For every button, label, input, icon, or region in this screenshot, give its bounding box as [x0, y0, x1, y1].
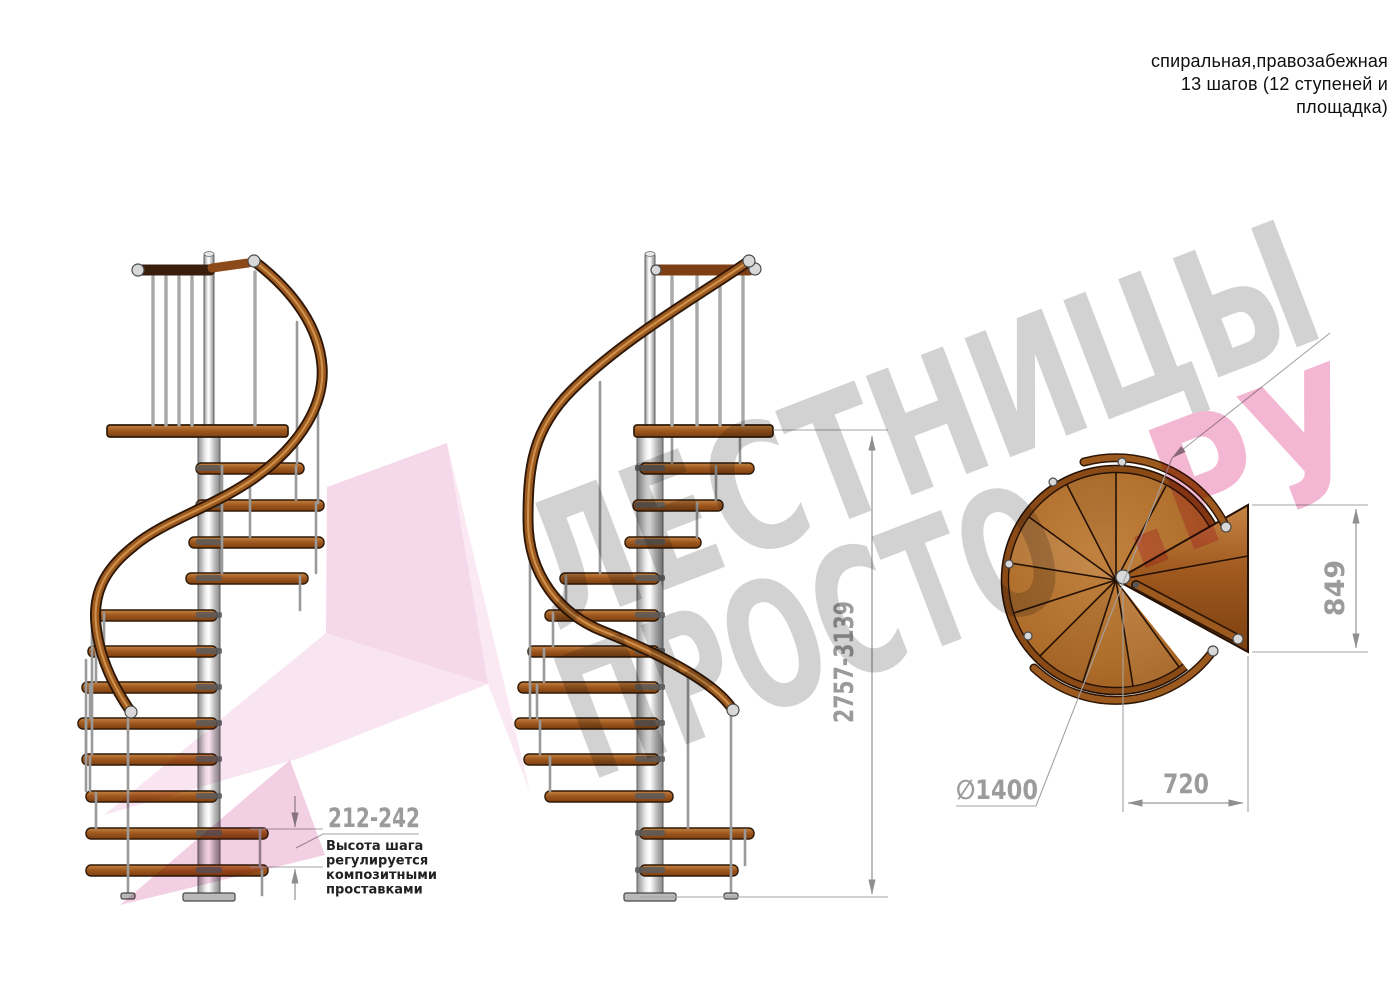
step-height-note: Высота шага — [326, 839, 423, 854]
total-height-value: 2757-3139 — [829, 601, 860, 723]
platform — [107, 425, 288, 437]
base — [121, 893, 235, 901]
diameter-value: ∅1400 — [956, 775, 1038, 806]
staircase-drawing: 212-242 Высота шага регулируется компози… — [0, 0, 1400, 1000]
title-line-3: площадка) — [1151, 96, 1388, 119]
drawing-title: спиральная,правозабежная 13 шагов (12 ст… — [1151, 50, 1388, 119]
step-height-note: композитными — [326, 868, 437, 883]
rail-end-cap — [132, 264, 144, 276]
platform — [634, 425, 773, 437]
step-height-note: регулируется — [326, 854, 428, 869]
drawing-canvas: 212-242 Высота шага регулируется компози… — [0, 0, 1400, 1000]
platform-width-value: 720 — [1163, 769, 1209, 800]
left-side-view — [78, 252, 324, 901]
step-height-value: 212-242 — [328, 803, 420, 834]
title-line-2: 13 шагов (12 ступеней и — [1151, 73, 1388, 96]
platform-railing — [132, 263, 255, 425]
middle-side-view — [515, 252, 773, 901]
platform-depth-value: 849 — [1320, 560, 1351, 616]
title-line-1: спиральная,правозабежная — [1151, 50, 1388, 73]
step-height-note: проставками — [326, 883, 423, 898]
dim-platform-depth: 849 — [1252, 505, 1368, 652]
steps-group — [515, 463, 754, 876]
dim-step-height: 212-242 Высота шага регулируется компози… — [250, 796, 437, 900]
